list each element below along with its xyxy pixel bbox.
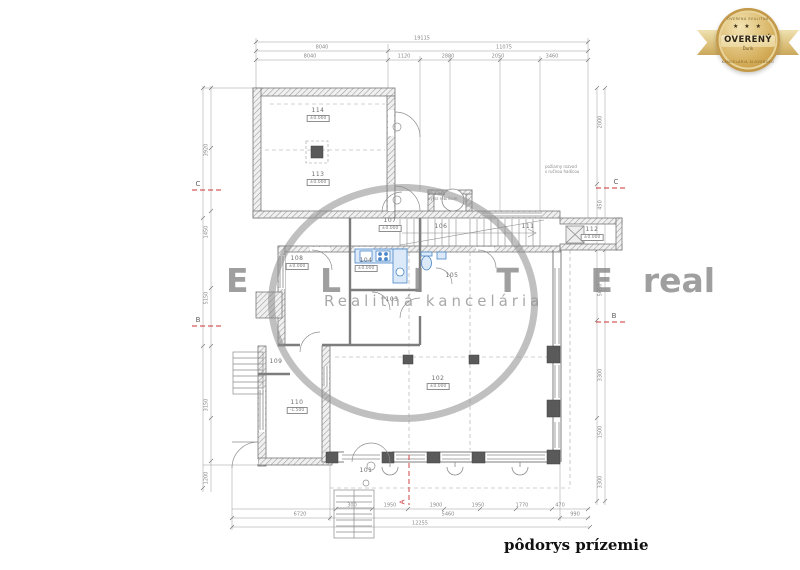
dim-label: 2880 (442, 55, 455, 60)
dim-label: 1450 (205, 226, 210, 239)
room-label-109: 109 (270, 359, 283, 365)
grid-marker-b-left: B (196, 316, 201, 324)
dim-label: 11075 (496, 46, 512, 51)
badge-seal: OVERENÁ REALITNÁ ★ ★ ★ OVERENÝ Ďurik KAN… (716, 8, 780, 72)
dim-label: 19115 (414, 37, 430, 42)
stair-exterior-south (334, 490, 374, 538)
room-label-111: 111 (522, 224, 535, 230)
grid-marker-c-right: C (614, 178, 619, 186)
dim-label: 12255 (412, 522, 428, 527)
dim-label: 5460 (442, 513, 455, 518)
dim-label: 3300 (599, 476, 604, 489)
dim-label: 3920 (205, 144, 210, 157)
dim-label: 1950 (384, 504, 397, 509)
badge-arc-bottom-text: KANCELÁRIA SLOVENSKO (716, 60, 780, 64)
grid-marker-b-right: B (612, 312, 617, 320)
room-label-114: 114 ±0.000 (307, 108, 330, 122)
badge-title: OVERENÝ (716, 35, 780, 45)
grid-marker-c-left: C (196, 180, 201, 188)
badge-arc-top-text: OVERENÁ REALITNÁ (716, 17, 780, 21)
dim-label: 2050 (492, 55, 505, 60)
watermark-tagline: Realitná kancelária (324, 292, 543, 310)
dim-label: 3300 (599, 369, 604, 382)
dim-label: 3460 (546, 55, 559, 60)
room-label-101: 101 (360, 468, 373, 474)
badge-subtitle: Ďurik (716, 46, 780, 51)
room-label-112: 112 ±0.000 (581, 227, 604, 241)
dim-label: 1120 (398, 55, 411, 60)
room-label-113: 113 ±0.000 (307, 172, 330, 186)
dim-label: 1900 (430, 504, 443, 509)
hydrant-note: požiarny rozvod s ručnou hadicou (545, 165, 579, 174)
dim-label: 5150 (205, 292, 210, 305)
dim-label: 470 (555, 504, 565, 509)
dim-label: 1770 (516, 504, 529, 509)
dim-label: 1200 (205, 472, 210, 485)
dim-label: 8040 (316, 46, 329, 51)
dim-label: 300 (347, 504, 357, 509)
room-label-110: 110 -1.500 (287, 400, 308, 414)
dim-label: 8040 (304, 55, 317, 60)
section-a-marker: A (398, 500, 406, 505)
dim-label: 6720 (294, 513, 307, 518)
dim-label: 1500 (599, 426, 604, 439)
badge-stars: ★ ★ ★ (716, 24, 780, 30)
dim-label: 3150 (205, 399, 210, 412)
verified-badge: OVERENÁ REALITNÁ ★ ★ ★ OVERENÝ Ďurik KAN… (697, 5, 799, 77)
dim-label: 990 (570, 513, 580, 518)
dim-label: 450 (599, 200, 604, 210)
lamp-symbols (382, 462, 528, 475)
drawing-title: pôdorys prízemie (504, 536, 649, 554)
floorplan-page: 114 ±0.000 113 ±0.000 108 ±0.000 107 ±0.… (0, 0, 800, 570)
dim-label: 1950 (472, 504, 485, 509)
dim-label: 2000 (599, 116, 604, 129)
